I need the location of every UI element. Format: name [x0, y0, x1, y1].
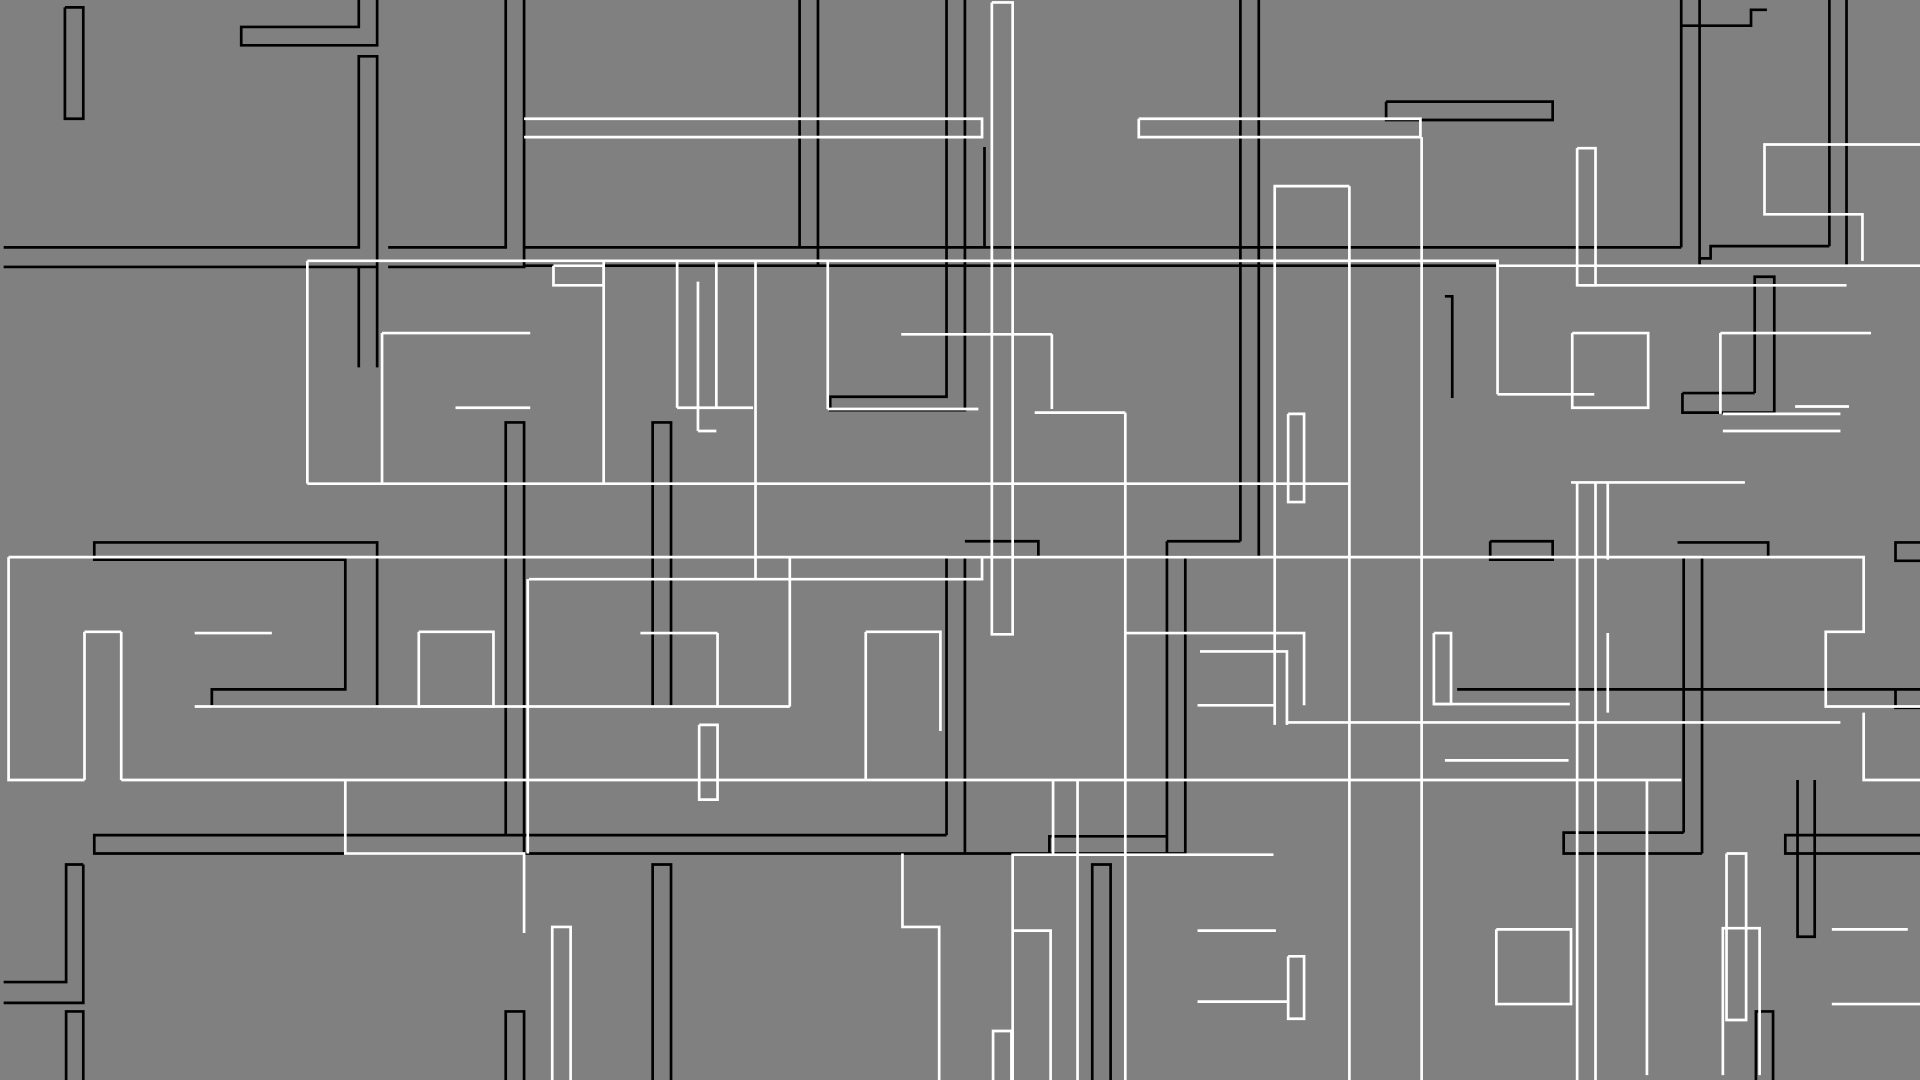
pattern-line-white — [9, 557, 85, 780]
pattern-line-black — [1049, 836, 1167, 853]
pattern-line-black — [1798, 780, 1815, 937]
pattern-line-black — [4, 56, 377, 267]
pattern-line-white — [1572, 333, 1648, 408]
pattern-line-black — [94, 835, 1185, 853]
pattern-line-black — [1678, 542, 1769, 557]
pattern-line-black — [66, 1011, 83, 1080]
pattern-line-white — [1288, 414, 1304, 502]
pattern-line-black — [506, 422, 524, 853]
pattern-line-white — [1434, 633, 1451, 704]
pattern-line-black — [4, 864, 84, 982]
abstract-line-pattern — [0, 0, 1920, 1080]
pattern-line-white — [1125, 633, 1304, 705]
pattern-line-white — [699, 725, 717, 800]
pattern-line-black — [1698, 246, 1829, 258]
pattern-line-black — [1682, 393, 1774, 413]
pattern-line-white — [345, 780, 524, 933]
pattern-line-white — [552, 927, 570, 1080]
pattern-line-white — [1014, 931, 1051, 1080]
pattern-line-white — [1139, 119, 1421, 137]
pattern-line-black — [388, 0, 506, 247]
pattern-line-black — [94, 542, 377, 706]
pattern-line-black — [1564, 833, 1702, 854]
pattern-line-black — [506, 1011, 524, 1080]
pattern-line-black — [388, 0, 524, 267]
pattern-line-black — [653, 422, 671, 706]
pattern-line-black — [1785, 835, 1920, 853]
pattern-line-black — [830, 0, 965, 410]
pattern-line-white — [1727, 853, 1747, 1020]
pattern-line-black — [1445, 296, 1452, 398]
pattern-line-black — [65, 7, 83, 118]
pattern-line-black — [653, 864, 671, 1080]
pattern-line-white — [1864, 713, 1920, 780]
pattern-line-black — [1092, 864, 1110, 1080]
pattern-line-white — [1764, 144, 1920, 260]
pattern-line-white — [866, 632, 941, 731]
pattern-line-white — [524, 119, 982, 137]
pattern-line-black — [1386, 102, 1553, 120]
pattern-line-black — [1680, 10, 1767, 26]
pattern-line-white — [993, 1031, 1011, 1080]
pattern-line-white — [1496, 929, 1571, 1004]
pattern-line-black — [241, 0, 377, 45]
pattern-line-white — [992, 2, 1013, 634]
pattern-line-black — [1896, 542, 1920, 560]
pattern-line-white — [553, 266, 603, 286]
pattern-line-white — [419, 632, 494, 707]
line-art-canvas — [0, 0, 1920, 1080]
pattern-line-white — [902, 853, 939, 1080]
pattern-line-white — [1723, 928, 1760, 1075]
pattern-line-black — [1896, 689, 1920, 707]
pattern-line-black — [1755, 277, 1775, 413]
pattern-line-white — [1288, 956, 1304, 1018]
